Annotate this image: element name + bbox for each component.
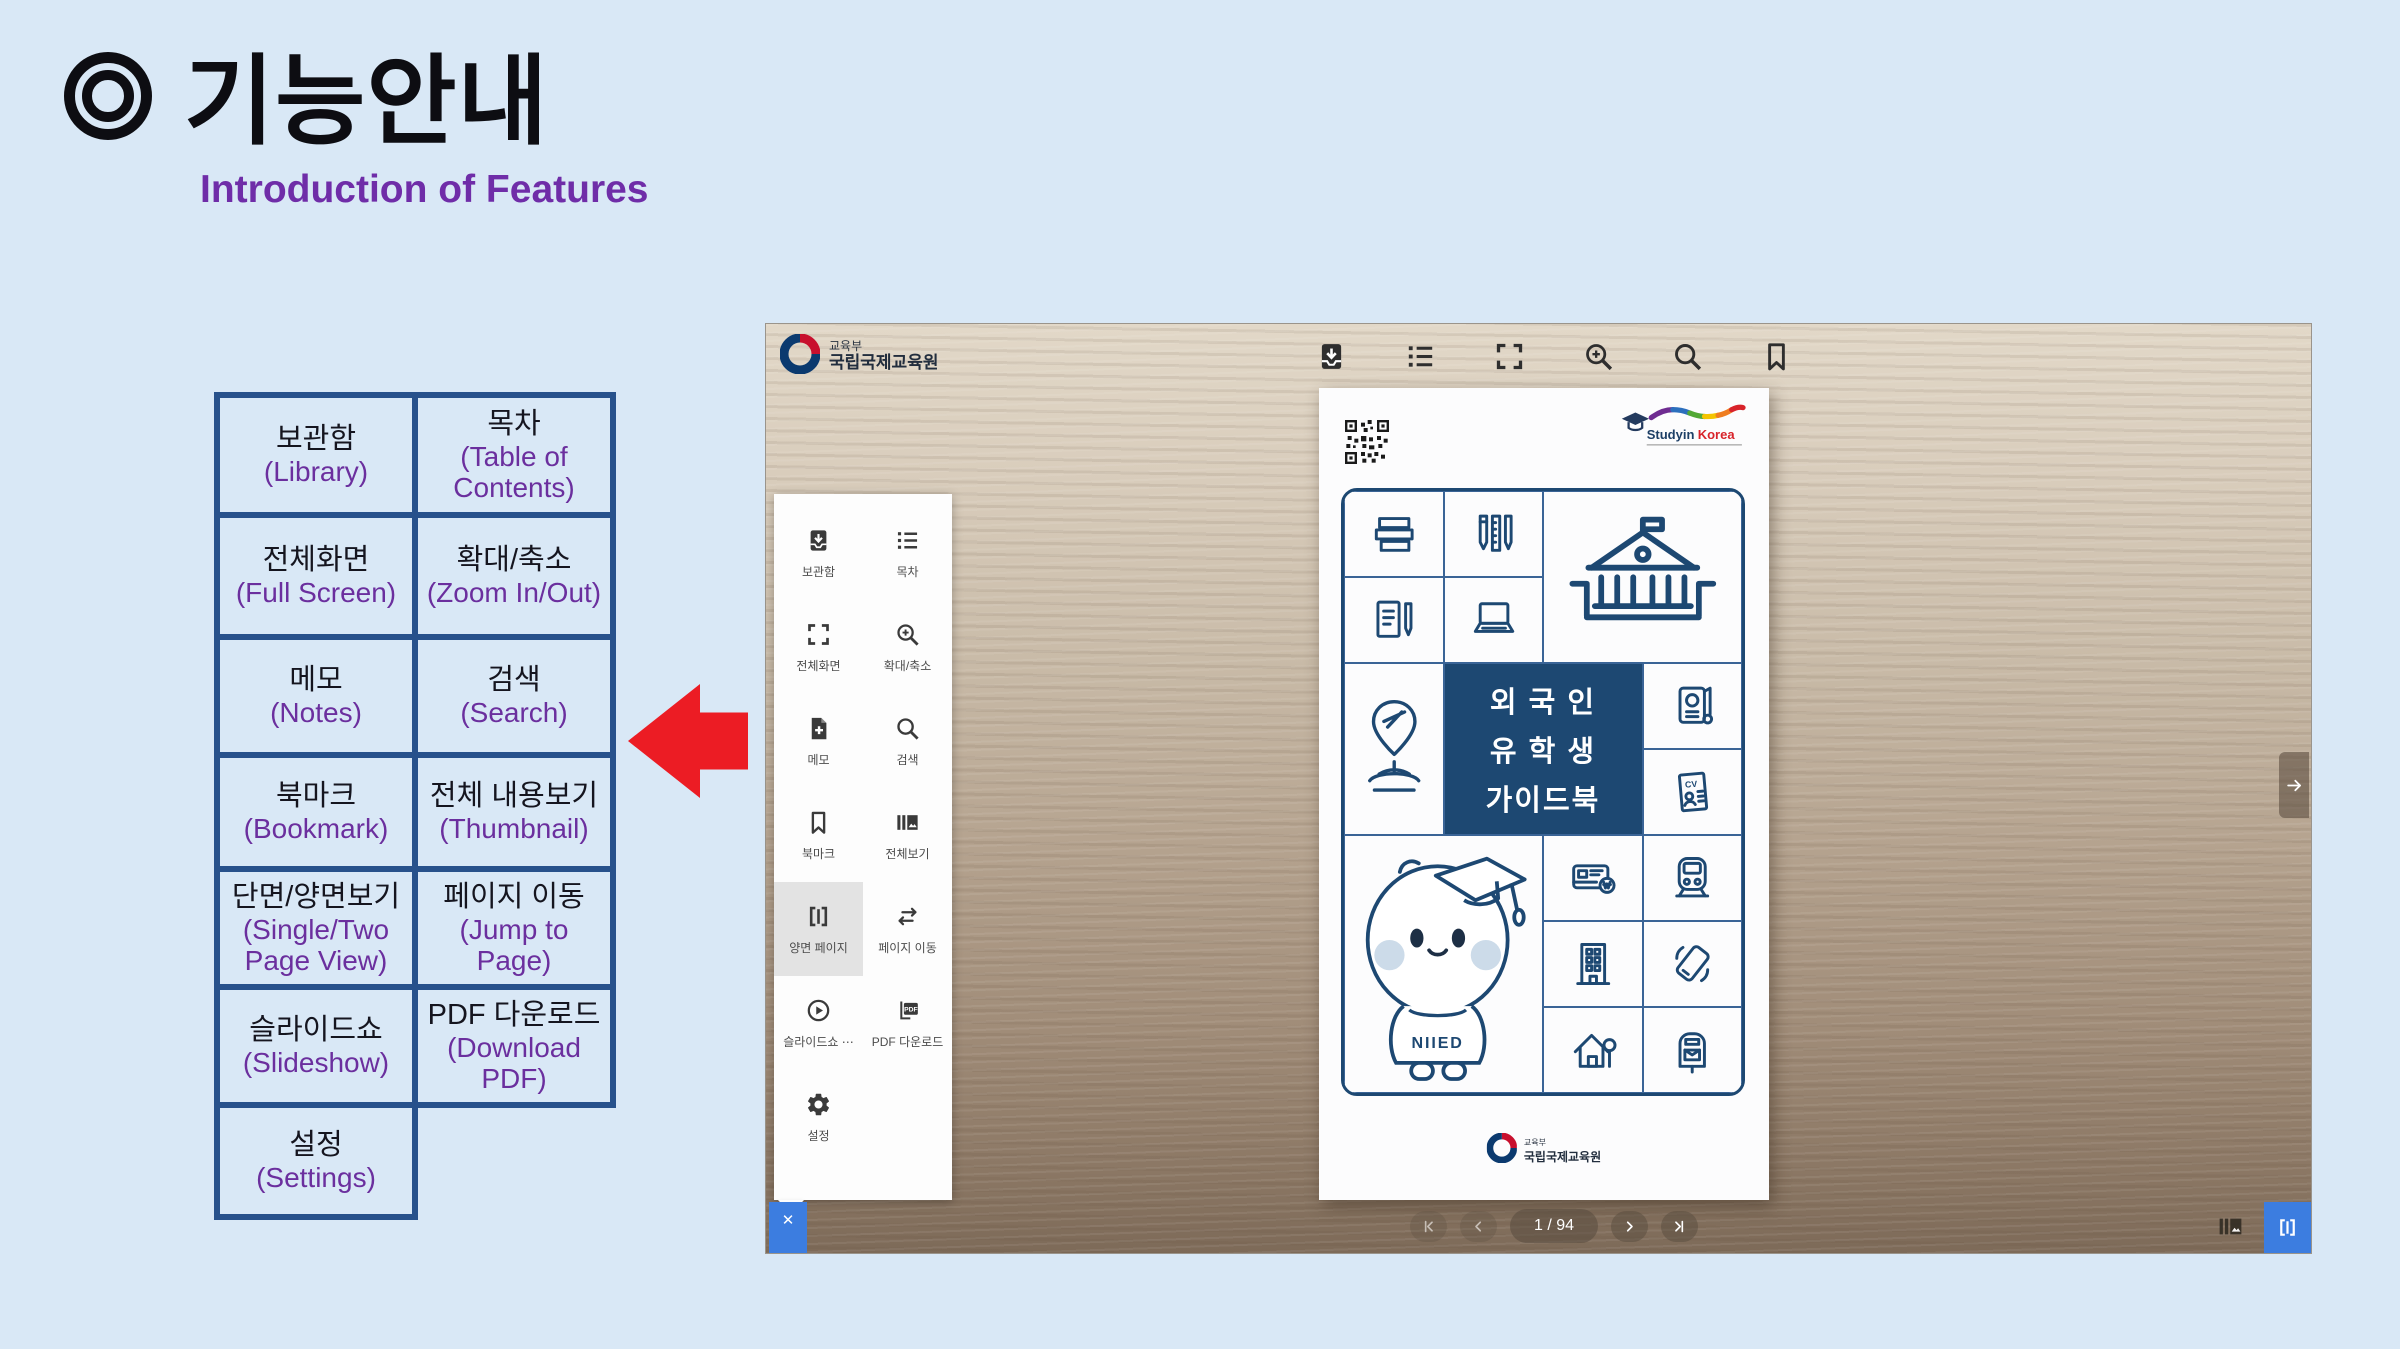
footer-institute: 국립국제교육원 bbox=[1524, 1148, 1601, 1165]
menu-item-label: 검색 bbox=[896, 751, 918, 768]
feature-korean-label: 북마크 bbox=[224, 779, 408, 813]
footer-ministry: 교육부 bbox=[1524, 1137, 1601, 1148]
cover-house-icon bbox=[1543, 1007, 1643, 1093]
feature-english-label: (Table of Contents) bbox=[422, 441, 606, 504]
feature-english-label: (Notes) bbox=[224, 697, 408, 728]
feature-english-label: (Download PDF) bbox=[422, 1032, 606, 1095]
book-cover-page: StudyinKorea 외 국 인유 학 생가이드북CVNIIED 교육부 국… bbox=[1319, 388, 1769, 1200]
double-circle-bullet-icon bbox=[64, 52, 152, 140]
thumbnail-icon bbox=[894, 809, 921, 836]
menu-item-thumbnail[interactable]: 전체보기 bbox=[863, 788, 952, 882]
menu-item-label: 페이지 이동 bbox=[878, 939, 937, 956]
feature-korean-label: 메모 bbox=[224, 663, 408, 697]
slideshow-icon bbox=[805, 997, 832, 1024]
feature-table-row: 북마크(Bookmark)전체 내용보기(Thumbnail) bbox=[217, 755, 613, 869]
previous-page-button[interactable] bbox=[1460, 1211, 1497, 1242]
menu-item-label: 슬라이드쇼 ⋯ bbox=[783, 1033, 854, 1050]
cover-icon-grid: 외 국 인유 학 생가이드북CVNIIED bbox=[1341, 488, 1745, 1096]
menu-item-search[interactable]: 검색 bbox=[863, 694, 952, 788]
ebook-viewer-screenshot: 교육부 국립국제교육원 보관함목차전체화면확대/축소메모검색북마크전체보기양면 … bbox=[765, 323, 2312, 1254]
cover-pin-icon bbox=[1344, 663, 1444, 835]
feature-english-label: (Single/Two Page View) bbox=[224, 914, 408, 977]
feature-table: 보관함(Library)목차(Table of Contents)전체화면(Fu… bbox=[214, 392, 616, 1220]
studyinkorea-logo: StudyinKorea bbox=[1615, 404, 1751, 456]
twopage-icon bbox=[805, 903, 832, 930]
qr-code bbox=[1345, 420, 1389, 464]
first-page-button[interactable] bbox=[1410, 1211, 1447, 1242]
thumbnail-view-button[interactable] bbox=[2216, 1212, 2245, 1241]
feature-cell: 설정(Settings) bbox=[217, 1105, 415, 1217]
niied-mascot: NIIED bbox=[1344, 835, 1543, 1093]
jump-icon bbox=[894, 903, 921, 930]
cover-stationery-icon bbox=[1444, 491, 1544, 577]
viewer-top-toolbar bbox=[1315, 340, 1793, 373]
feature-cell: 단면/양면보기(Single/Two Page View) bbox=[217, 869, 415, 987]
svg-text:Korea: Korea bbox=[1698, 427, 1736, 442]
page-indicator[interactable]: 1 / 94 bbox=[1510, 1209, 1598, 1243]
page-subtitle: Introduction of Features bbox=[200, 168, 649, 212]
zoom-icon bbox=[894, 621, 921, 648]
feature-cell: 페이지 이동(Jump to Page) bbox=[415, 869, 613, 987]
feature-english-label: (Full Screen) bbox=[224, 577, 408, 608]
viewer-menu-panel: 보관함목차전체화면확대/축소메모검색북마크전체보기양면 페이지페이지 이동슬라이… bbox=[774, 494, 952, 1200]
menu-item-label: 양면 페이지 bbox=[789, 939, 848, 956]
menu-item-label: 북마크 bbox=[802, 845, 835, 862]
page-navigation-bar: 1 / 94 bbox=[1410, 1209, 1698, 1243]
cover-title-line: 유 학 생 bbox=[1490, 728, 1596, 770]
menu-item-slideshow[interactable]: 슬라이드쇼 ⋯ bbox=[774, 976, 863, 1070]
feature-table-row: 슬라이드쇼(Slideshow)PDF 다운로드(Download PDF) bbox=[217, 987, 613, 1105]
feature-cell: PDF 다운로드(Download PDF) bbox=[415, 987, 613, 1105]
feature-cell: 검색(Search) bbox=[415, 637, 613, 755]
menu-item-label: 전체화면 bbox=[796, 657, 840, 674]
cover-laptop-icon bbox=[1444, 577, 1544, 663]
next-page-button[interactable] bbox=[1611, 1211, 1648, 1242]
feature-english-label: (Zoom In/Out) bbox=[422, 577, 606, 608]
cover-document-icon bbox=[1344, 577, 1444, 663]
feature-english-label: (Bookmark) bbox=[224, 813, 408, 844]
feature-cell: 보관함(Library) bbox=[217, 395, 415, 515]
feature-cell: 전체화면(Full Screen) bbox=[217, 515, 415, 637]
svg-text:Studyin: Studyin bbox=[1647, 427, 1695, 442]
note-icon bbox=[805, 715, 832, 742]
feature-english-label: (Jump to Page) bbox=[422, 914, 606, 977]
feature-korean-label: 페이지 이동 bbox=[422, 880, 606, 914]
menu-item-settings[interactable]: 설정 bbox=[774, 1070, 863, 1164]
feature-cell-empty bbox=[415, 1105, 613, 1217]
svg-text:PDF: PDF bbox=[904, 1006, 918, 1013]
menu-item-label: 보관함 bbox=[802, 563, 835, 580]
feature-english-label: (Slideshow) bbox=[224, 1047, 408, 1078]
menu-item-bookmark[interactable]: 북마크 bbox=[774, 788, 863, 882]
cover-phone-icon bbox=[1643, 921, 1743, 1007]
next-page-edge-tab[interactable] bbox=[2279, 752, 2309, 818]
cover-card-icon bbox=[1543, 835, 1643, 921]
toolbar-library-icon[interactable] bbox=[1315, 340, 1348, 373]
feature-cell: 메모(Notes) bbox=[217, 637, 415, 755]
feature-english-label: (Thumbnail) bbox=[422, 813, 606, 844]
bookmark-icon bbox=[805, 809, 832, 836]
toolbar-bookmark-icon[interactable] bbox=[1760, 340, 1793, 373]
cover-mailbox-icon bbox=[1643, 1007, 1743, 1093]
cover-passport-icon bbox=[1643, 663, 1743, 749]
taegeuk-logo-icon bbox=[780, 334, 820, 379]
publisher-ministry: 교육부 bbox=[829, 340, 938, 353]
feature-korean-label: 목차 bbox=[422, 407, 606, 441]
feature-korean-label: 확대/축소 bbox=[422, 543, 606, 577]
feature-korean-label: 전체화면 bbox=[224, 543, 408, 577]
fullscreen-icon bbox=[805, 621, 832, 648]
book-footer-logo: 교육부 국립국제교육원 bbox=[1487, 1133, 1601, 1168]
menu-item-label: 메모 bbox=[807, 751, 829, 768]
toolbar-search-icon[interactable] bbox=[1671, 340, 1704, 373]
feature-cell: 전체 내용보기(Thumbnail) bbox=[415, 755, 613, 869]
toolbar-fullscreen-icon[interactable] bbox=[1493, 340, 1526, 373]
feature-korean-label: 전체 내용보기 bbox=[422, 779, 606, 813]
pdf-icon: PDF bbox=[894, 997, 921, 1024]
cover-cv-icon: CV bbox=[1643, 749, 1743, 835]
menu-item-label: 목차 bbox=[896, 563, 918, 580]
menu-item-twopage[interactable]: 양면 페이지 bbox=[774, 882, 863, 976]
cover-title-line: 외 국 인 bbox=[1490, 679, 1596, 721]
feature-table-row: 단면/양면보기(Single/Two Page View)페이지 이동(Jump… bbox=[217, 869, 613, 987]
taegeuk-logo-icon bbox=[1487, 1133, 1517, 1168]
feature-cell: 북마크(Bookmark) bbox=[217, 755, 415, 869]
menu-item-toc[interactable]: 목차 bbox=[863, 506, 952, 600]
cover-building-icon bbox=[1543, 921, 1643, 1007]
svg-text:CV: CV bbox=[1685, 779, 1698, 790]
toolbar-toc-icon[interactable] bbox=[1404, 340, 1437, 373]
svg-text:NIIED: NIIED bbox=[1412, 1034, 1464, 1052]
feature-cell: 확대/축소(Zoom In/Out) bbox=[415, 515, 613, 637]
feature-cell: 목차(Table of Contents) bbox=[415, 395, 613, 515]
menu-item-label: 확대/축소 bbox=[884, 657, 932, 674]
cover-books-icon bbox=[1344, 491, 1444, 577]
menu-item-library[interactable]: 보관함 bbox=[774, 506, 863, 600]
menu-item-note[interactable]: 메모 bbox=[774, 694, 863, 788]
feature-english-label: (Settings) bbox=[224, 1162, 408, 1193]
toc-icon bbox=[894, 527, 921, 554]
two-page-view-button[interactable] bbox=[2264, 1202, 2311, 1253]
menu-close-button[interactable]: ✕ bbox=[769, 1202, 807, 1253]
menu-item-fullscreen[interactable]: 전체화면 bbox=[774, 600, 863, 694]
page-title: 기능안내 bbox=[184, 22, 549, 164]
feature-cell: 슬라이드쇼(Slideshow) bbox=[217, 987, 415, 1105]
cover-title-block: 외 국 인유 학 생가이드북 bbox=[1444, 663, 1643, 835]
publisher-institute: 국립국제교육원 bbox=[829, 353, 938, 373]
cover-university-icon bbox=[1543, 491, 1742, 663]
toolbar-zoom-icon[interactable] bbox=[1582, 340, 1615, 373]
library-icon bbox=[805, 527, 832, 554]
settings-icon bbox=[805, 1091, 832, 1118]
cover-title-line: 가이드북 bbox=[1486, 777, 1601, 819]
feature-korean-label: 검색 bbox=[422, 663, 606, 697]
menu-item-label: PDF 다운로드 bbox=[872, 1033, 944, 1050]
feature-table-row: 보관함(Library)목차(Table of Contents) bbox=[217, 395, 613, 515]
last-page-button[interactable] bbox=[1661, 1211, 1698, 1242]
menu-item-label: 설정 bbox=[807, 1127, 829, 1144]
callout-arrow-left-icon bbox=[628, 684, 748, 798]
slide: 기능안내 Introduction of Features 보관함(Librar… bbox=[0, 0, 2400, 1349]
menu-item-jump[interactable]: 페이지 이동 bbox=[863, 882, 952, 976]
menu-item-zoom[interactable]: 확대/축소 bbox=[863, 600, 952, 694]
publisher-logo: 교육부 국립국제교육원 bbox=[780, 334, 938, 379]
feature-english-label: (Library) bbox=[224, 456, 408, 487]
menu-item-pdf[interactable]: PDFPDF 다운로드 bbox=[863, 976, 952, 1070]
feature-korean-label: 설정 bbox=[224, 1128, 408, 1162]
feature-korean-label: 슬라이드쇼 bbox=[224, 1013, 408, 1047]
feature-table-row: 설정(Settings) bbox=[217, 1105, 613, 1217]
menu-item-label: 전체보기 bbox=[885, 845, 929, 862]
feature-korean-label: PDF 다운로드 bbox=[422, 998, 606, 1032]
feature-table-row: 전체화면(Full Screen)확대/축소(Zoom In/Out) bbox=[217, 515, 613, 637]
search-icon bbox=[894, 715, 921, 742]
feature-korean-label: 보관함 bbox=[224, 422, 408, 456]
feature-english-label: (Search) bbox=[422, 697, 606, 728]
feature-korean-label: 단면/양면보기 bbox=[224, 880, 408, 914]
cover-train-icon bbox=[1643, 835, 1743, 921]
feature-table-row: 메모(Notes)검색(Search) bbox=[217, 637, 613, 755]
